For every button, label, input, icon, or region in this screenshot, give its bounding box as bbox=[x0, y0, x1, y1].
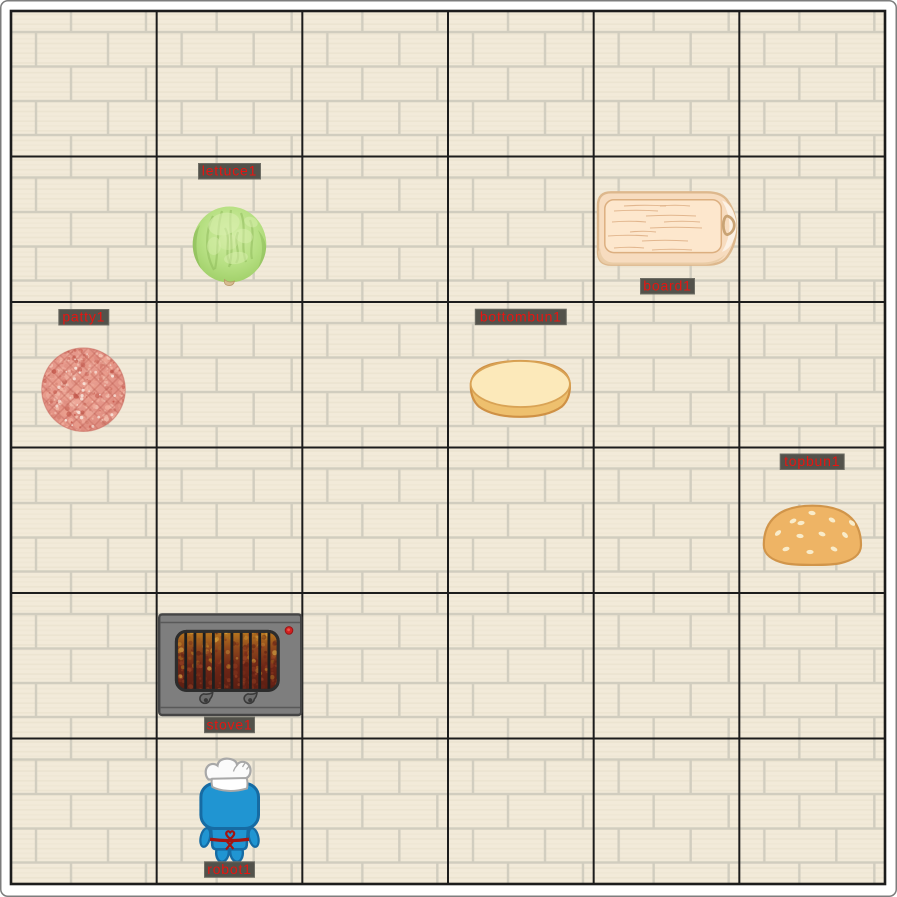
svg-text:robot1: robot1 bbox=[207, 861, 252, 877]
svg-text:stove1: stove1 bbox=[206, 716, 252, 732]
svg-text:patty1: patty1 bbox=[62, 309, 105, 325]
svg-text:topbun1: topbun1 bbox=[784, 453, 840, 469]
svg-text:board1: board1 bbox=[643, 278, 691, 294]
svg-text:lettuce1: lettuce1 bbox=[202, 163, 257, 179]
svg-text:bottombun1: bottombun1 bbox=[480, 308, 562, 324]
